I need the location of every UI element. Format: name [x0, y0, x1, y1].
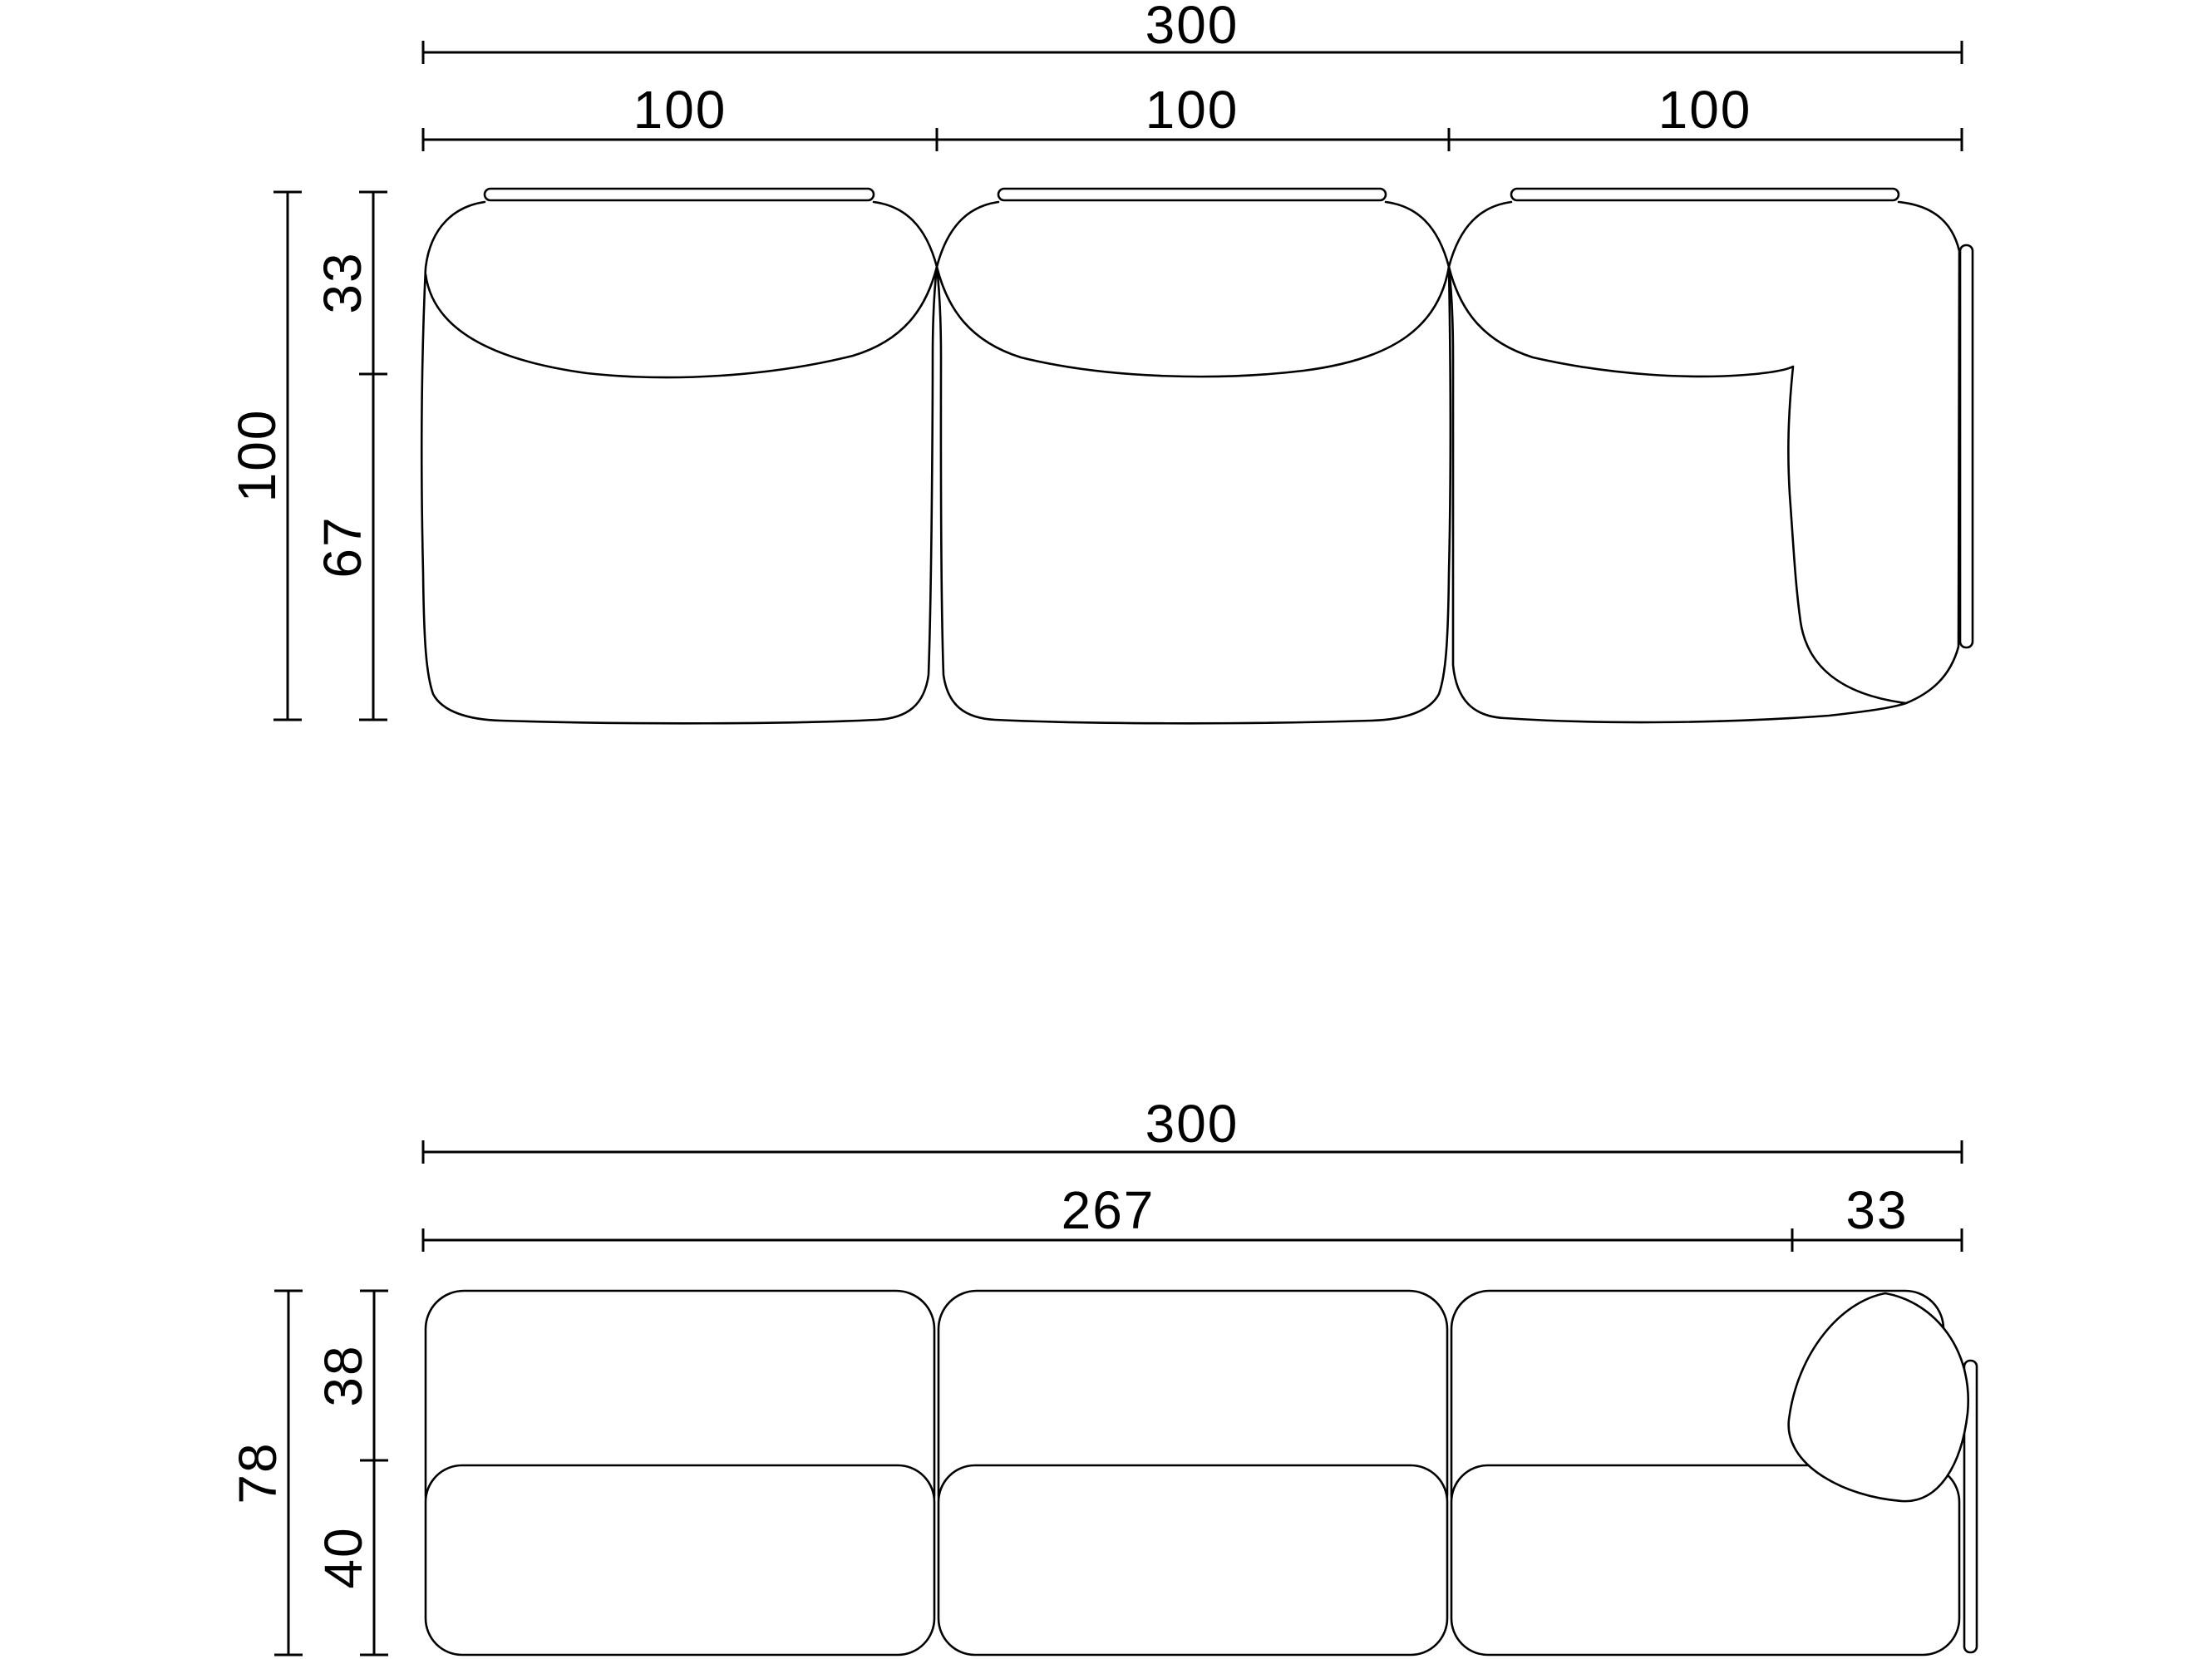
drawing-svg: 300 100 100 100 100 33 67 [0, 0, 2212, 1659]
module-3-rail [1511, 189, 1899, 200]
front-view: 300 267 33 78 38 40 [228, 1094, 1977, 1655]
top-view: 300 100 100 100 100 33 67 [227, 0, 1973, 723]
dim-label-module-3-width: 100 [1658, 80, 1752, 140]
module-2-seat-front [938, 1465, 1447, 1655]
dim-label-overall-height: 78 [228, 1441, 288, 1504]
dim-label-seat-depth: 67 [313, 515, 372, 578]
module-1-rail [485, 189, 874, 200]
backrest-curve-module-1 [426, 202, 998, 377]
module-1-seat-front [426, 1465, 934, 1655]
backrest-curve-module-3-chaise-edge [1386, 202, 1906, 703]
module-2-rail [998, 189, 1386, 200]
dim-label-overall-depth: 100 [227, 409, 287, 503]
front-view-sofa [426, 1291, 1977, 1655]
dim-label-module-1-width: 100 [633, 80, 727, 140]
front-dim-width-segments: 267 33 [423, 1180, 1962, 1252]
dim-label-overall-width: 300 [1145, 0, 1239, 55]
backrest-curve-module-2 [874, 202, 1511, 377]
top-dim-module-widths: 100 100 100 [423, 80, 1962, 151]
sofa-dimension-drawing: 300 100 100 100 100 33 67 [0, 0, 2212, 1659]
dim-label-backrest-depth: 33 [313, 251, 372, 313]
dim-label-seat-width: 267 [1062, 1180, 1155, 1240]
dim-label-backrest-height: 38 [313, 1344, 373, 1406]
module-1-outline [421, 202, 937, 723]
armrest-side-panel-top-view [1960, 245, 1973, 647]
top-dim-overall-depth: 100 [227, 192, 302, 720]
front-dim-overall-height: 78 [228, 1291, 303, 1655]
front-dim-overall-width: 300 [423, 1094, 1962, 1164]
dim-label-overall-width: 300 [1145, 1094, 1239, 1154]
dim-label-module-2-width: 100 [1145, 80, 1239, 140]
dim-label-seat-height: 40 [313, 1526, 373, 1588]
dim-label-armrest-width: 33 [1845, 1180, 1908, 1240]
module-2-outline [937, 267, 1451, 723]
front-dim-height-segments: 38 40 [313, 1291, 388, 1655]
top-dim-overall-width: 300 [423, 0, 1962, 64]
module-3-outline [1449, 202, 1959, 722]
top-view-sofa [421, 189, 1973, 723]
top-dim-depth-segments: 33 67 [313, 192, 387, 720]
